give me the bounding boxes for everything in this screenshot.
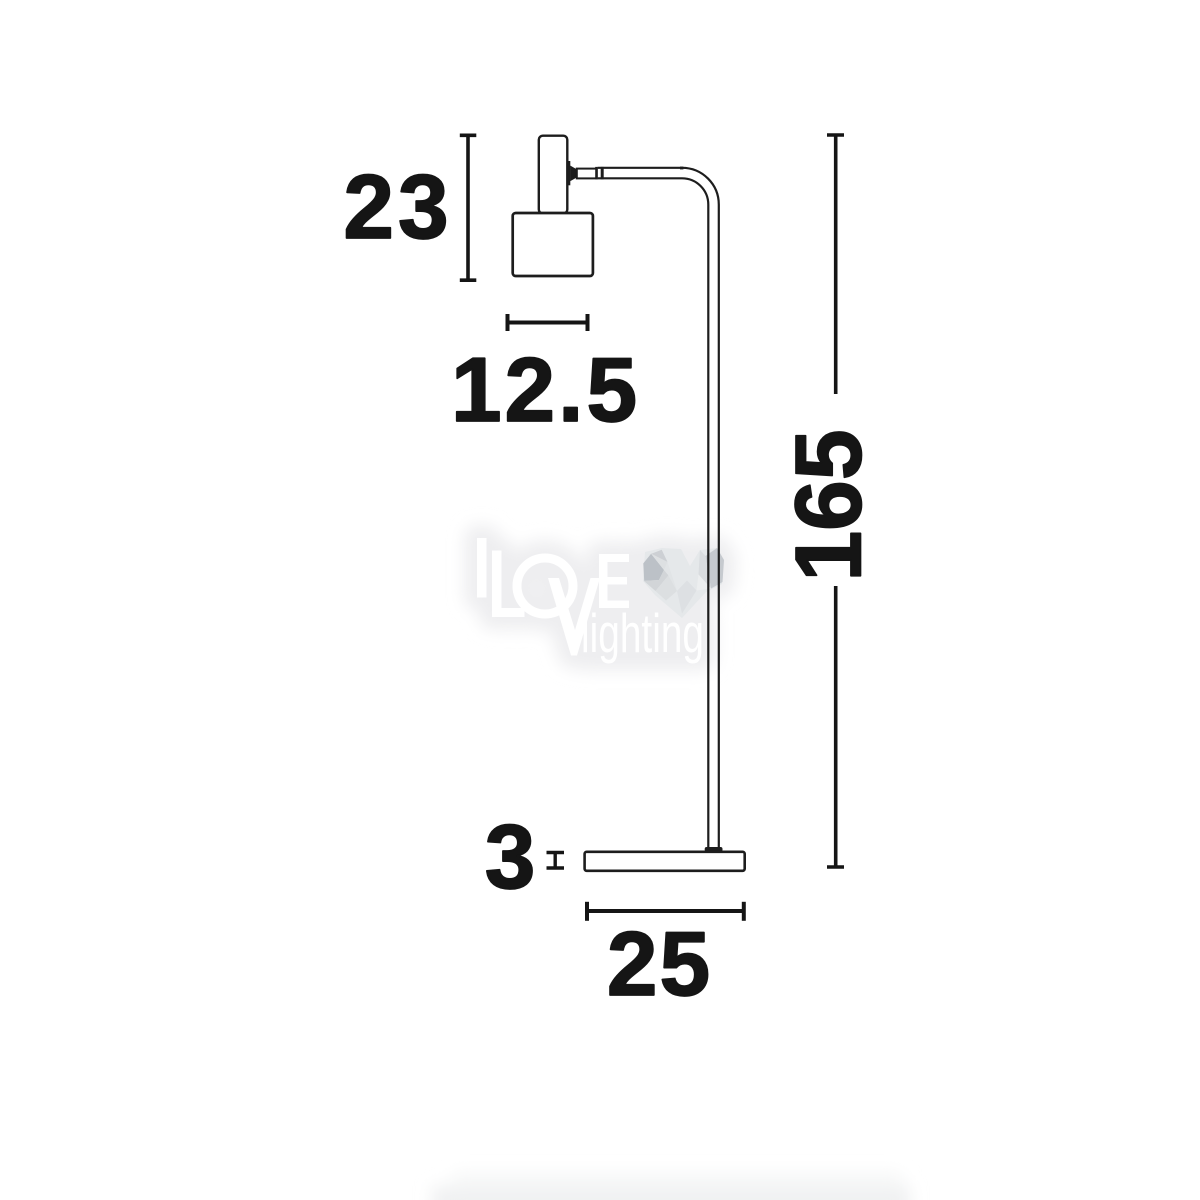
svg-text:12.5: 12.5 (451, 340, 640, 441)
svg-text:23: 23 (343, 157, 452, 258)
svg-text:25: 25 (607, 914, 712, 1015)
svg-text:165: 165 (776, 430, 881, 582)
svg-text:3: 3 (485, 807, 536, 908)
